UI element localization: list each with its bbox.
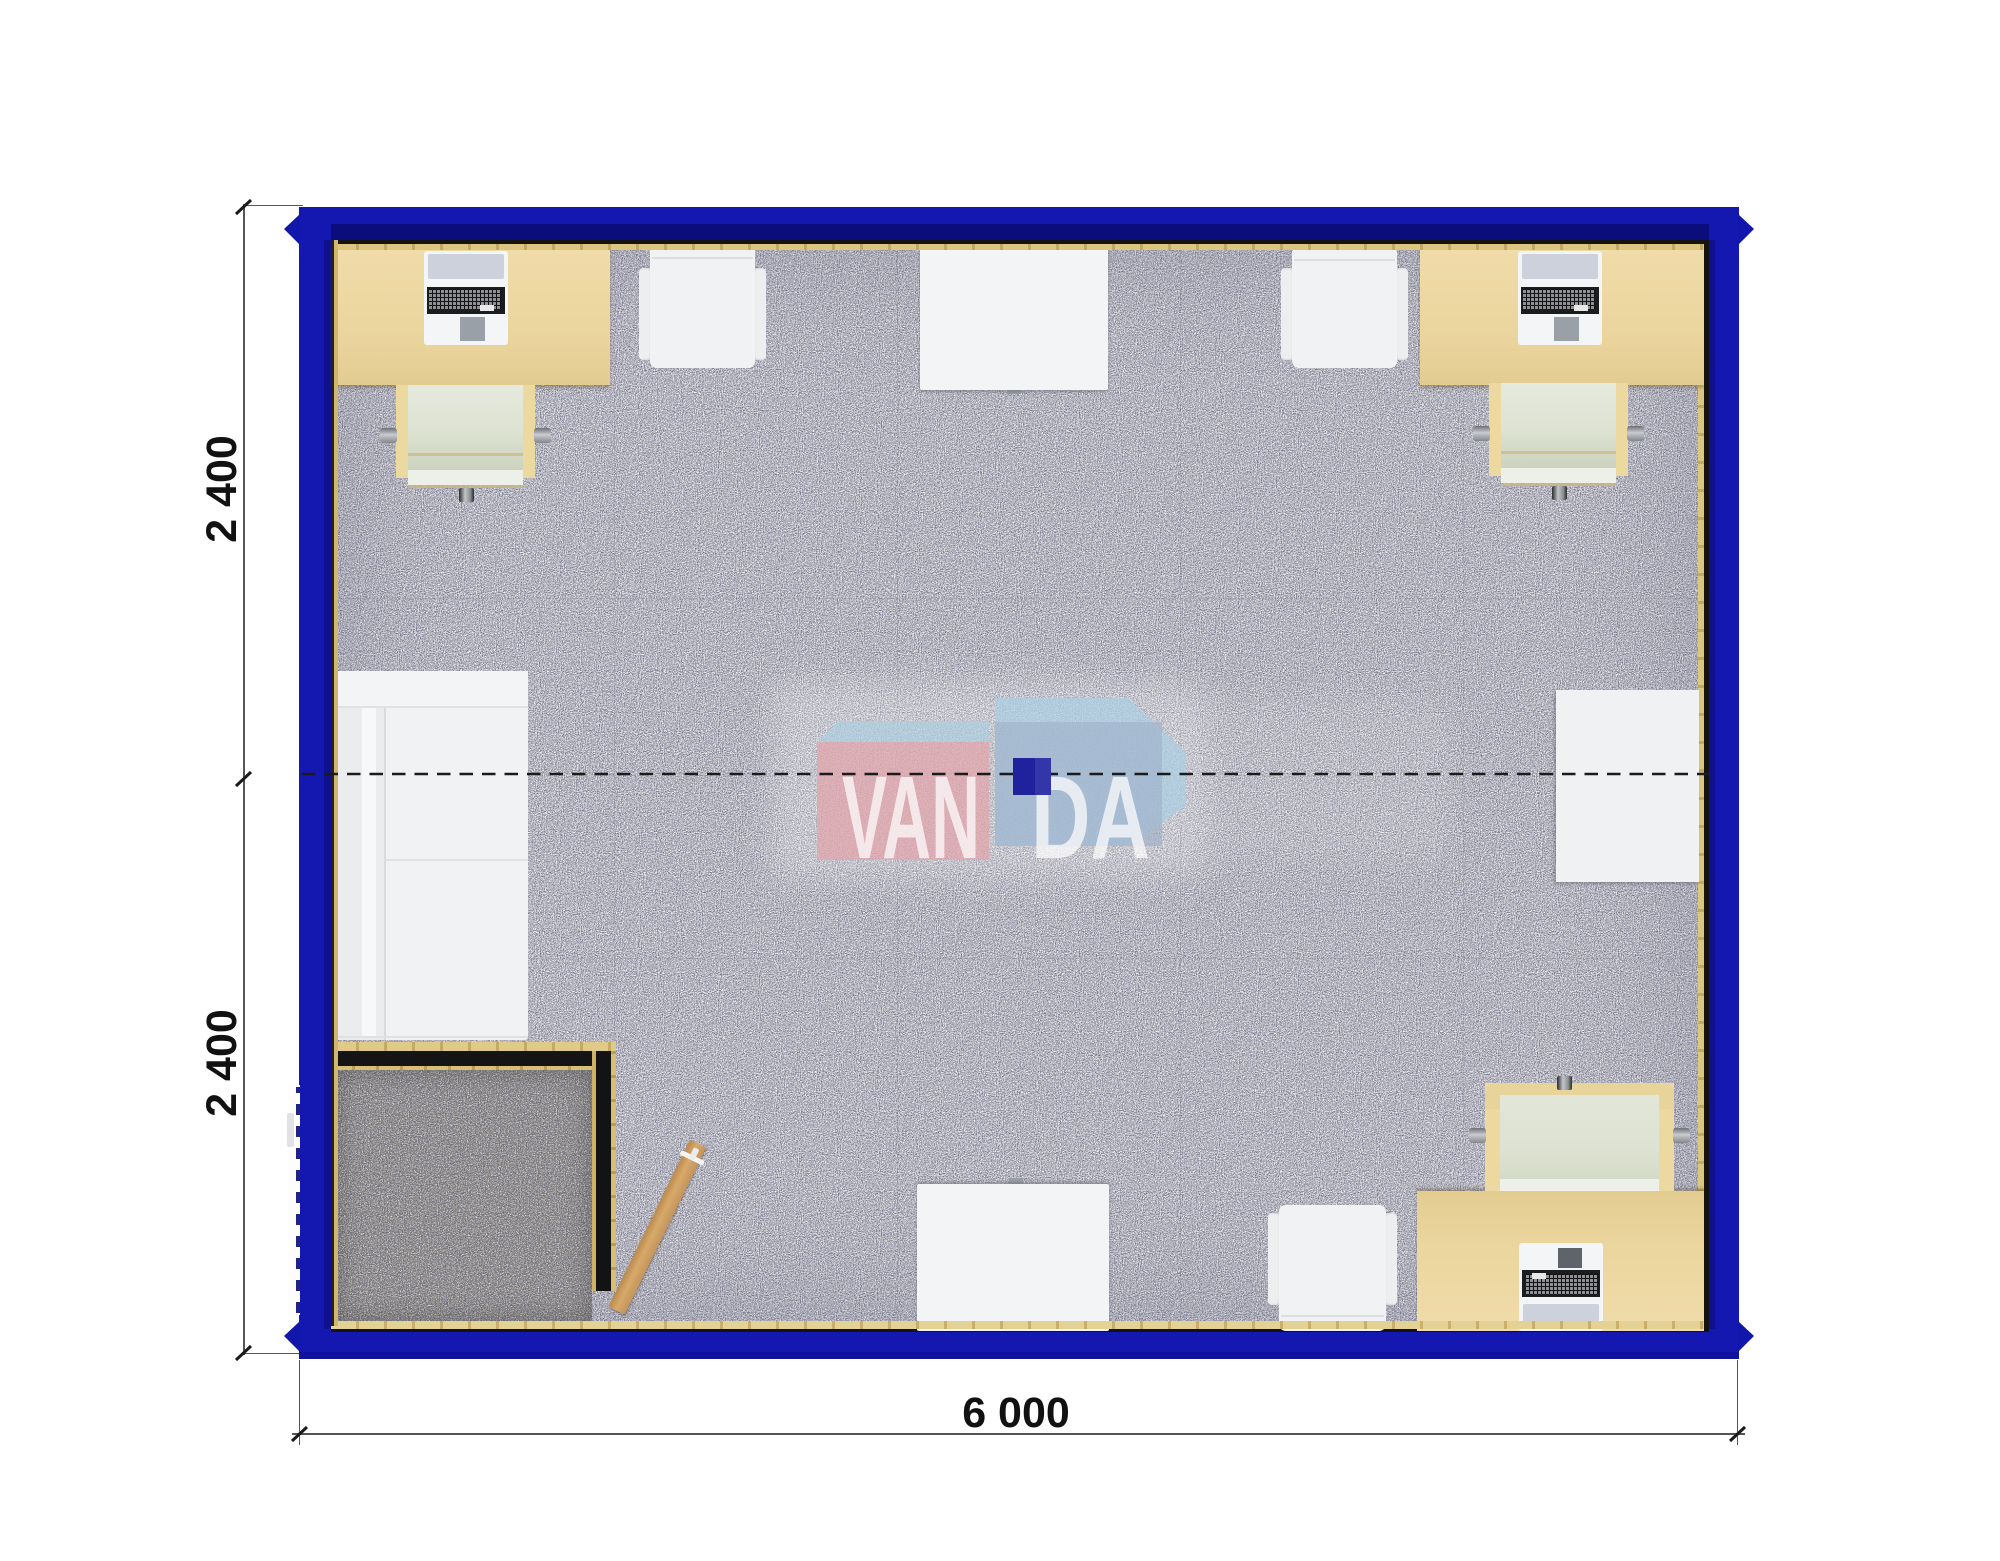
svg-text:VAN: VAN [842, 752, 980, 884]
